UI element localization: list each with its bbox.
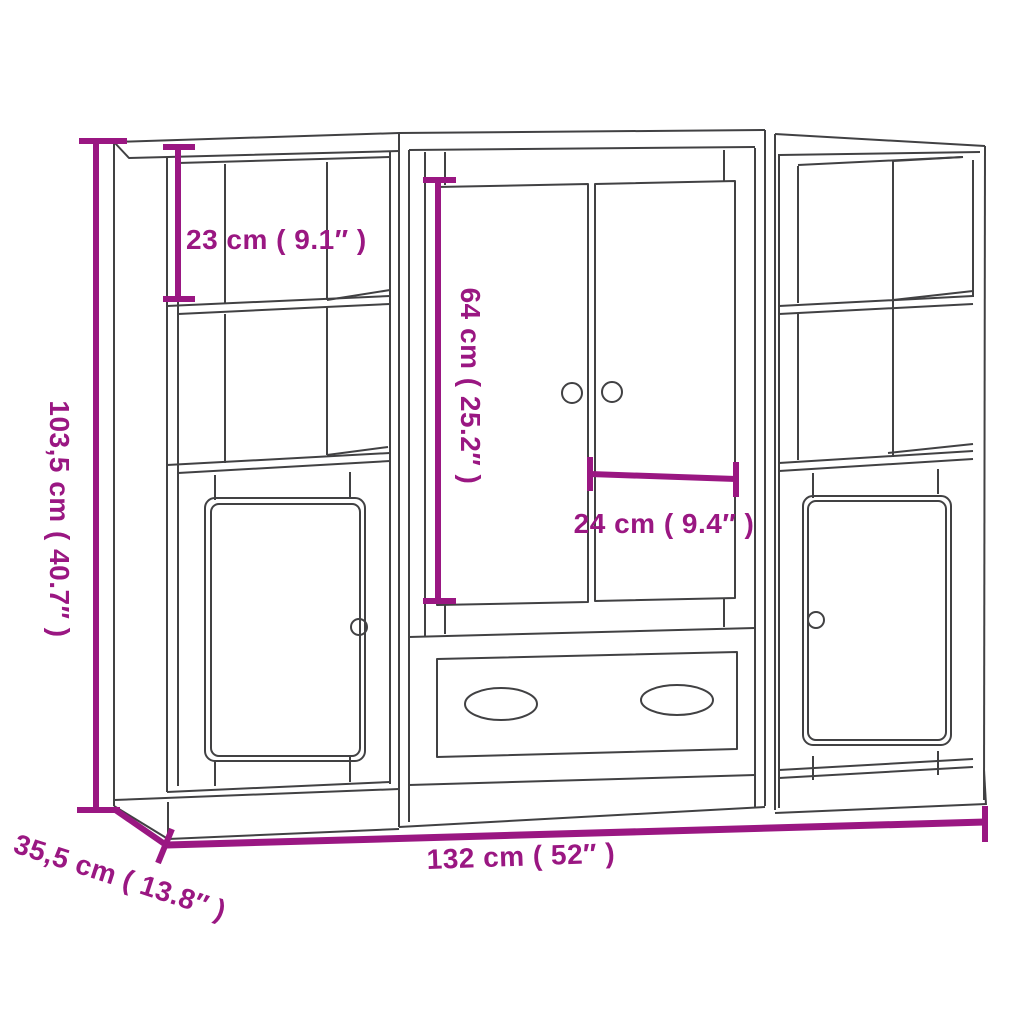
base-front-edge — [775, 804, 986, 813]
door-width-dimension-line — [590, 474, 736, 479]
drawer-handle-left — [465, 688, 537, 720]
right-unit — [775, 134, 986, 813]
top-front-edge — [409, 147, 755, 150]
depth-dimension: 35,5 cm ( 13.8″ ) — [10, 809, 230, 926]
door-height-dimension-label: 64 cm ( 25.2″ ) — [455, 288, 486, 485]
middle-right-door-knob — [602, 382, 622, 402]
width-dimension: 132 cm ( 52″ ) — [158, 806, 985, 875]
dimension-annotations: 103,5 cm ( 40.7″ ) 23 cm ( 9.1″ ) 64 cm … — [10, 141, 985, 926]
door-height-dimension: 64 cm ( 25.2″ ) — [423, 180, 486, 601]
highboard-dimension-diagram: 103,5 cm ( 40.7″ ) 23 cm ( 9.1″ ) 64 cm … — [0, 0, 1024, 1024]
drawer-handle-right — [641, 685, 713, 715]
depth-dimension-line — [114, 809, 166, 845]
right-door — [803, 496, 951, 745]
door-width-dimension: 24 cm ( 9.4″ ) — [574, 457, 755, 539]
height-dimension-label: 103,5 cm ( 40.7″ ) — [44, 400, 75, 637]
top-compartment-dimension-label: 23 cm ( 9.1″ ) — [186, 224, 367, 255]
base-left-slope — [114, 806, 168, 839]
drawer-front — [437, 652, 737, 757]
door-width-dimension-label: 24 cm ( 9.4″ ) — [574, 508, 755, 539]
top-back-edge — [399, 130, 765, 133]
right-door-knob — [808, 612, 824, 628]
line-drawing: 103,5 cm ( 40.7″ ) 23 cm ( 9.1″ ) 64 cm … — [0, 0, 1024, 1024]
middle-left-door-knob — [562, 383, 582, 403]
top-front-edge — [779, 152, 980, 155]
top-compartment-dimension: 23 cm ( 9.1″ ) — [163, 147, 367, 299]
width-dimension-label: 132 cm ( 52″ ) — [426, 837, 615, 875]
top-back-edge — [775, 134, 985, 146]
right-outer-edge — [984, 146, 985, 800]
left-door — [205, 498, 365, 761]
base-front-edge — [399, 807, 765, 827]
top-front-edge — [114, 142, 399, 158]
shelf — [167, 296, 390, 306]
top-back-edge — [114, 133, 399, 142]
